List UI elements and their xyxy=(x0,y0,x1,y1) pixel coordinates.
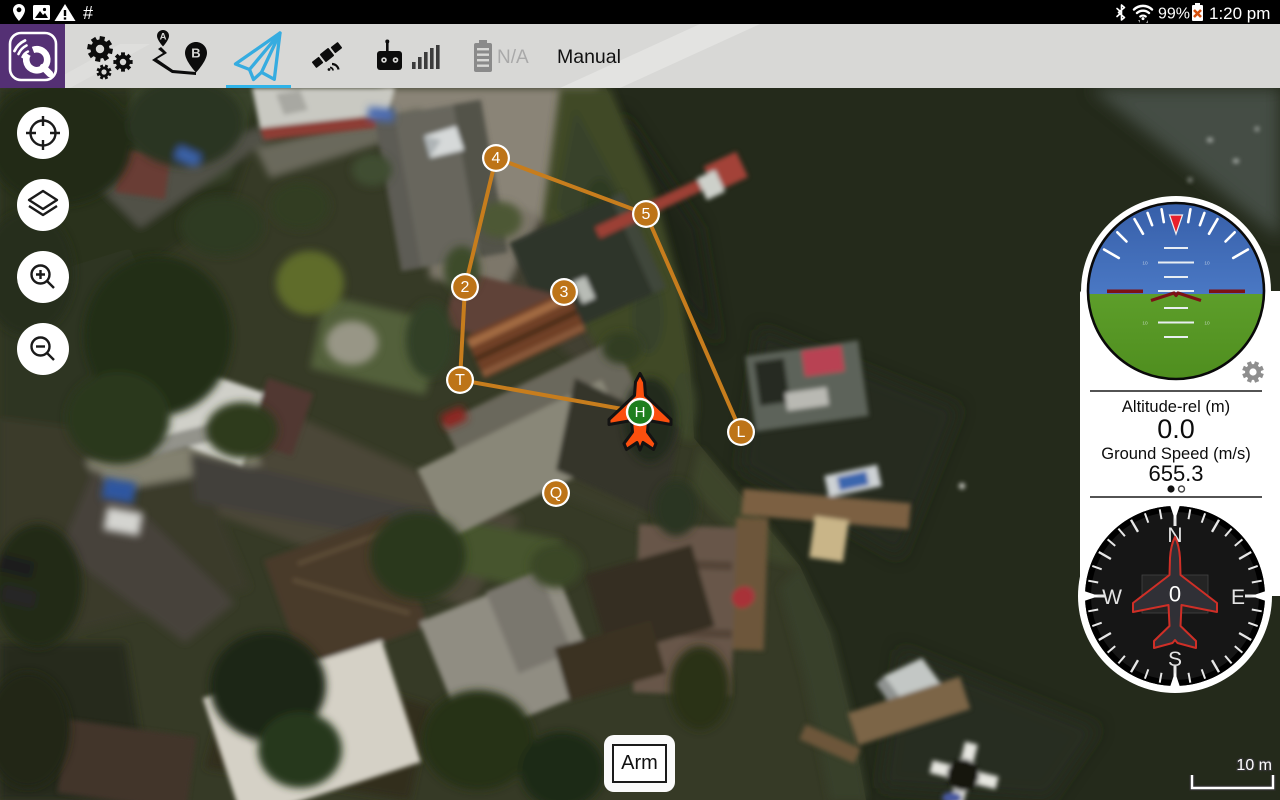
svg-text:N/A: N/A xyxy=(497,47,529,68)
svg-text:99%: 99% xyxy=(1158,6,1190,23)
svg-text:S: S xyxy=(1168,648,1182,671)
svg-text:1:20 pm: 1:20 pm xyxy=(1209,4,1270,23)
svg-text:0.0: 0.0 xyxy=(1157,414,1195,444)
svg-text:10: 10 xyxy=(1204,321,1210,327)
svg-text:10: 10 xyxy=(1204,261,1210,267)
svg-text:655.3: 655.3 xyxy=(1148,461,1203,486)
svg-text:A: A xyxy=(160,32,167,43)
svg-text:10: 10 xyxy=(1142,261,1148,267)
svg-text:W: W xyxy=(1102,586,1122,609)
svg-text:0: 0 xyxy=(1169,582,1181,607)
svg-text:10 m: 10 m xyxy=(1236,757,1272,774)
svg-text:#: # xyxy=(83,3,93,23)
svg-text:B: B xyxy=(191,46,200,61)
svg-text:E: E xyxy=(1231,586,1245,609)
svg-text:Manual: Manual xyxy=(557,46,621,68)
svg-text:10: 10 xyxy=(1142,321,1148,327)
